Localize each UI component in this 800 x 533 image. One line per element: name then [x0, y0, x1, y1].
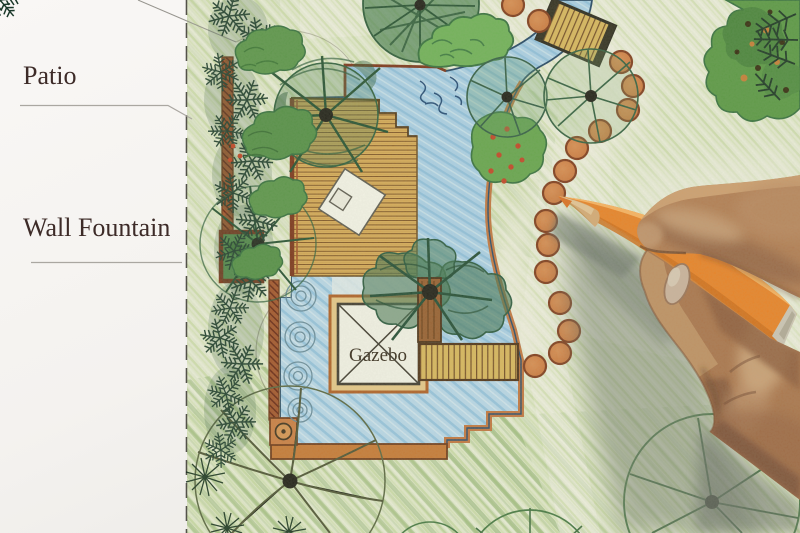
svg-text:Wall Fountain: Wall Fountain: [23, 213, 170, 242]
svg-text:Patio: Patio: [23, 61, 76, 90]
